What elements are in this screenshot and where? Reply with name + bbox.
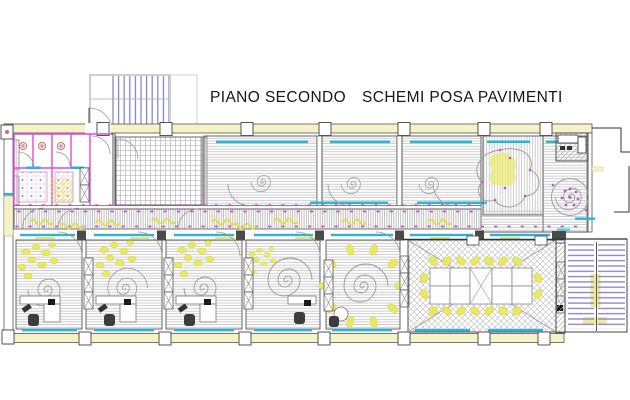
floor-accent (50, 178, 72, 204)
floor-continuation (481, 209, 543, 232)
floor-plan-drawing (0, 0, 630, 400)
shelf-xbox (164, 258, 173, 309)
conference-table (430, 268, 532, 304)
window-lines (216, 141, 472, 144)
boundary-marker (592, 167, 603, 171)
shelf-xbox (84, 258, 93, 309)
tiled-floor (17, 172, 47, 202)
room-c (402, 136, 481, 206)
east-rooms (477, 133, 595, 232)
tiled-room (116, 137, 207, 205)
meeting-room (403, 236, 566, 332)
corner-store-room (556, 133, 588, 161)
room-b (322, 136, 397, 206)
cad-floor-plan-screenshot: PIANO SECONDO SCHEMI POSA PAVIMENTI (0, 0, 630, 400)
toilets-block (14, 133, 115, 206)
yellow-thresholds (35, 237, 520, 239)
shaft-xbox (80, 168, 89, 202)
office-4 (246, 240, 320, 329)
door-arcs (18, 136, 110, 168)
room-a (204, 136, 317, 206)
stair-wall (556, 243, 565, 333)
lower-exterior-staircase (556, 239, 627, 333)
shelf-xbox (244, 258, 253, 309)
north-rooms (204, 136, 487, 206)
shelf-xbox (324, 260, 333, 311)
wc-fixtures (20, 143, 65, 150)
offices (16, 232, 409, 331)
stair-steps (568, 244, 594, 329)
yellow-inlay (490, 152, 516, 186)
stair-steps (111, 76, 169, 124)
stair-steps (598, 244, 625, 329)
